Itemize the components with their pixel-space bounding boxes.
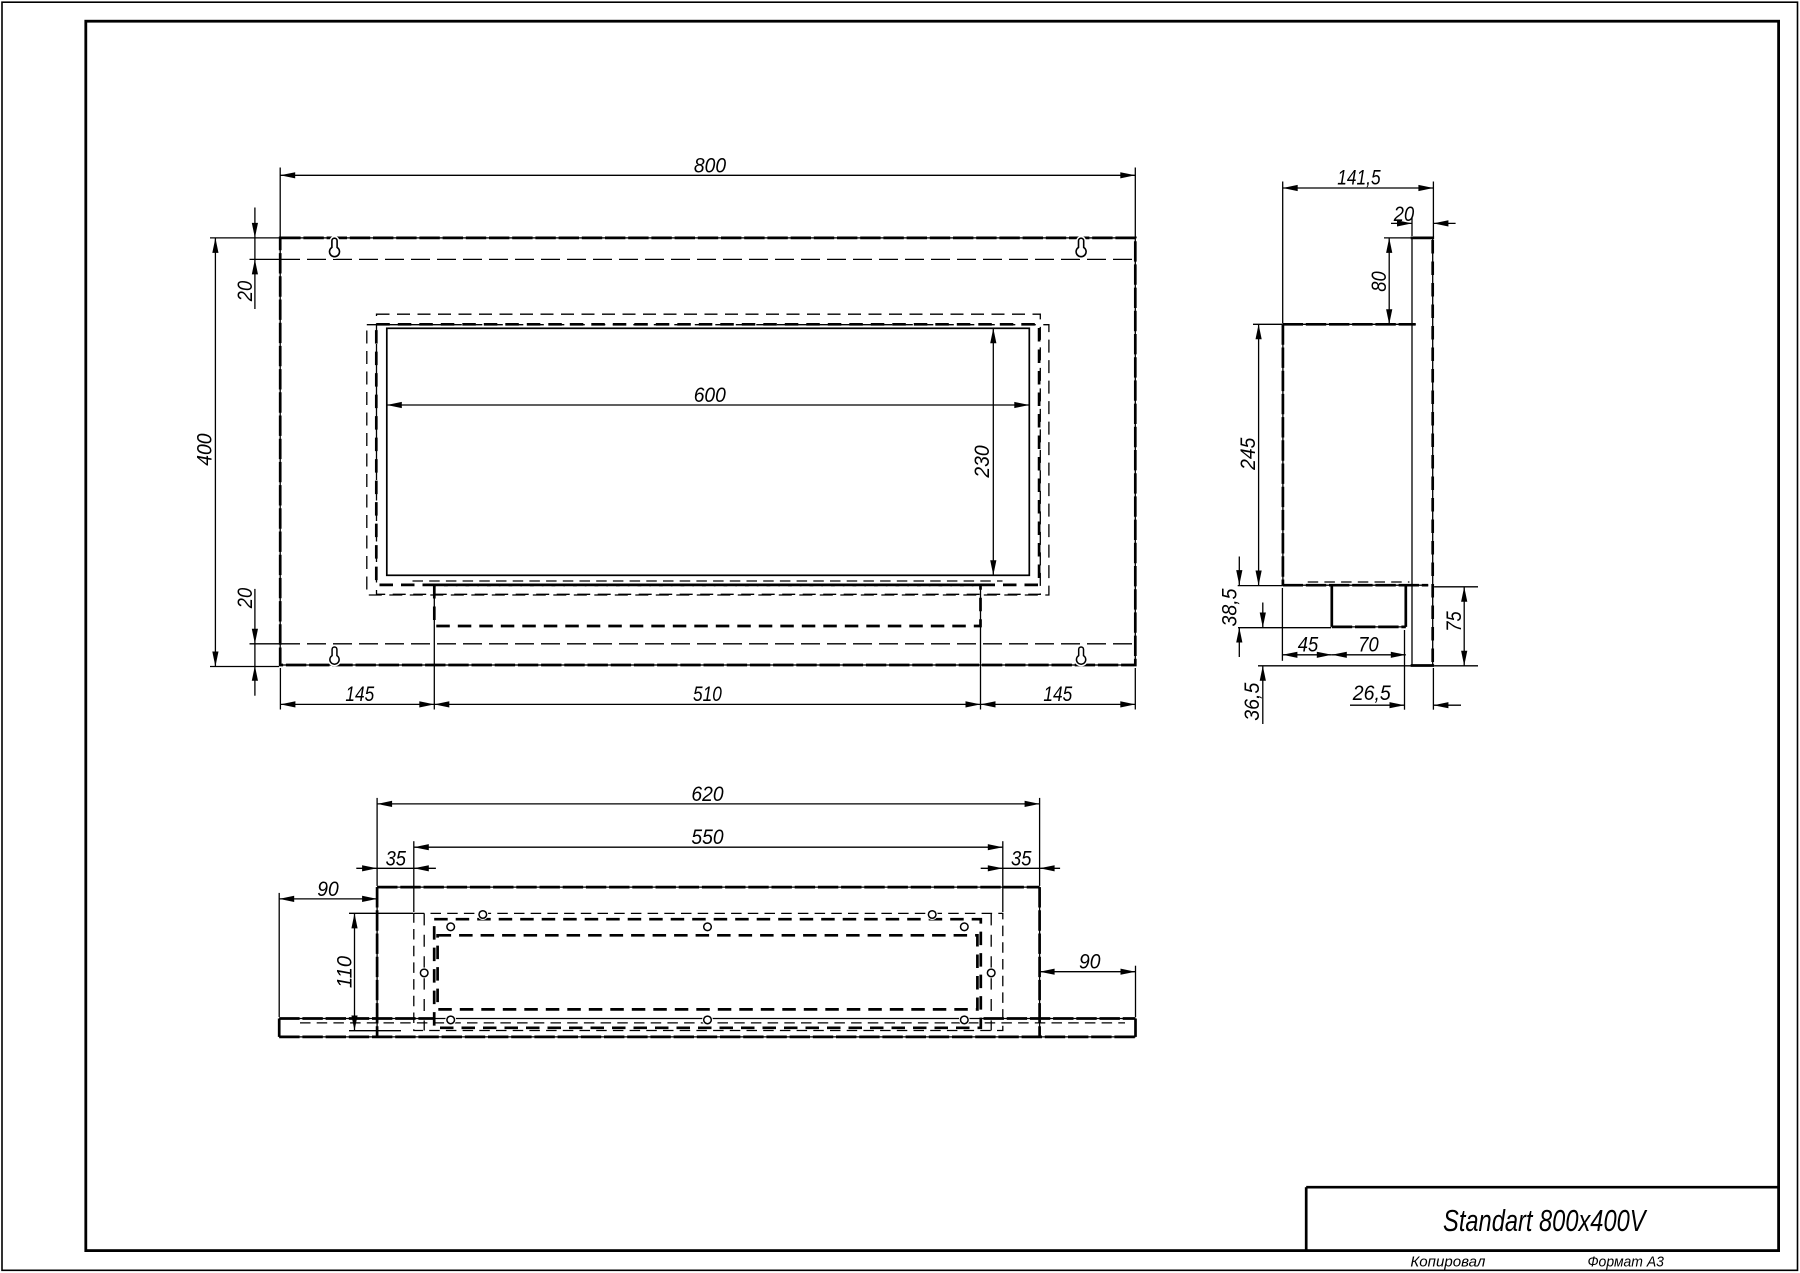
svg-text:141,5: 141,5: [1337, 166, 1381, 190]
svg-text:75: 75: [1442, 611, 1466, 632]
svg-text:38,5: 38,5: [1217, 588, 1241, 626]
svg-text:600: 600: [694, 383, 726, 407]
svg-text:20: 20: [233, 588, 257, 609]
svg-text:45: 45: [1298, 633, 1319, 657]
svg-text:510: 510: [693, 682, 722, 706]
svg-text:90: 90: [1079, 950, 1101, 974]
svg-text:70: 70: [1358, 633, 1379, 657]
svg-text:90: 90: [317, 877, 339, 901]
svg-text:550: 550: [691, 825, 723, 849]
svg-text:400: 400: [192, 433, 216, 465]
svg-text:800: 800: [694, 153, 726, 177]
svg-text:Формат А3: Формат А3: [1587, 1254, 1664, 1270]
svg-text:35: 35: [1011, 846, 1032, 870]
svg-text:Копировал: Копировал: [1410, 1254, 1485, 1270]
svg-text:245: 245: [1236, 438, 1260, 471]
svg-text:36,5: 36,5: [1240, 683, 1264, 721]
svg-text:620: 620: [691, 782, 723, 806]
svg-text:35: 35: [386, 846, 407, 870]
svg-text:80: 80: [1367, 271, 1391, 292]
svg-text:Standart 800x400V: Standart 800x400V: [1443, 1204, 1647, 1238]
svg-text:145: 145: [345, 682, 374, 706]
svg-text:26,5: 26,5: [1352, 681, 1391, 705]
svg-text:230: 230: [970, 445, 994, 478]
svg-text:20: 20: [1393, 202, 1414, 226]
svg-text:20: 20: [233, 281, 257, 302]
svg-text:110: 110: [333, 956, 357, 988]
svg-text:145: 145: [1043, 682, 1072, 706]
